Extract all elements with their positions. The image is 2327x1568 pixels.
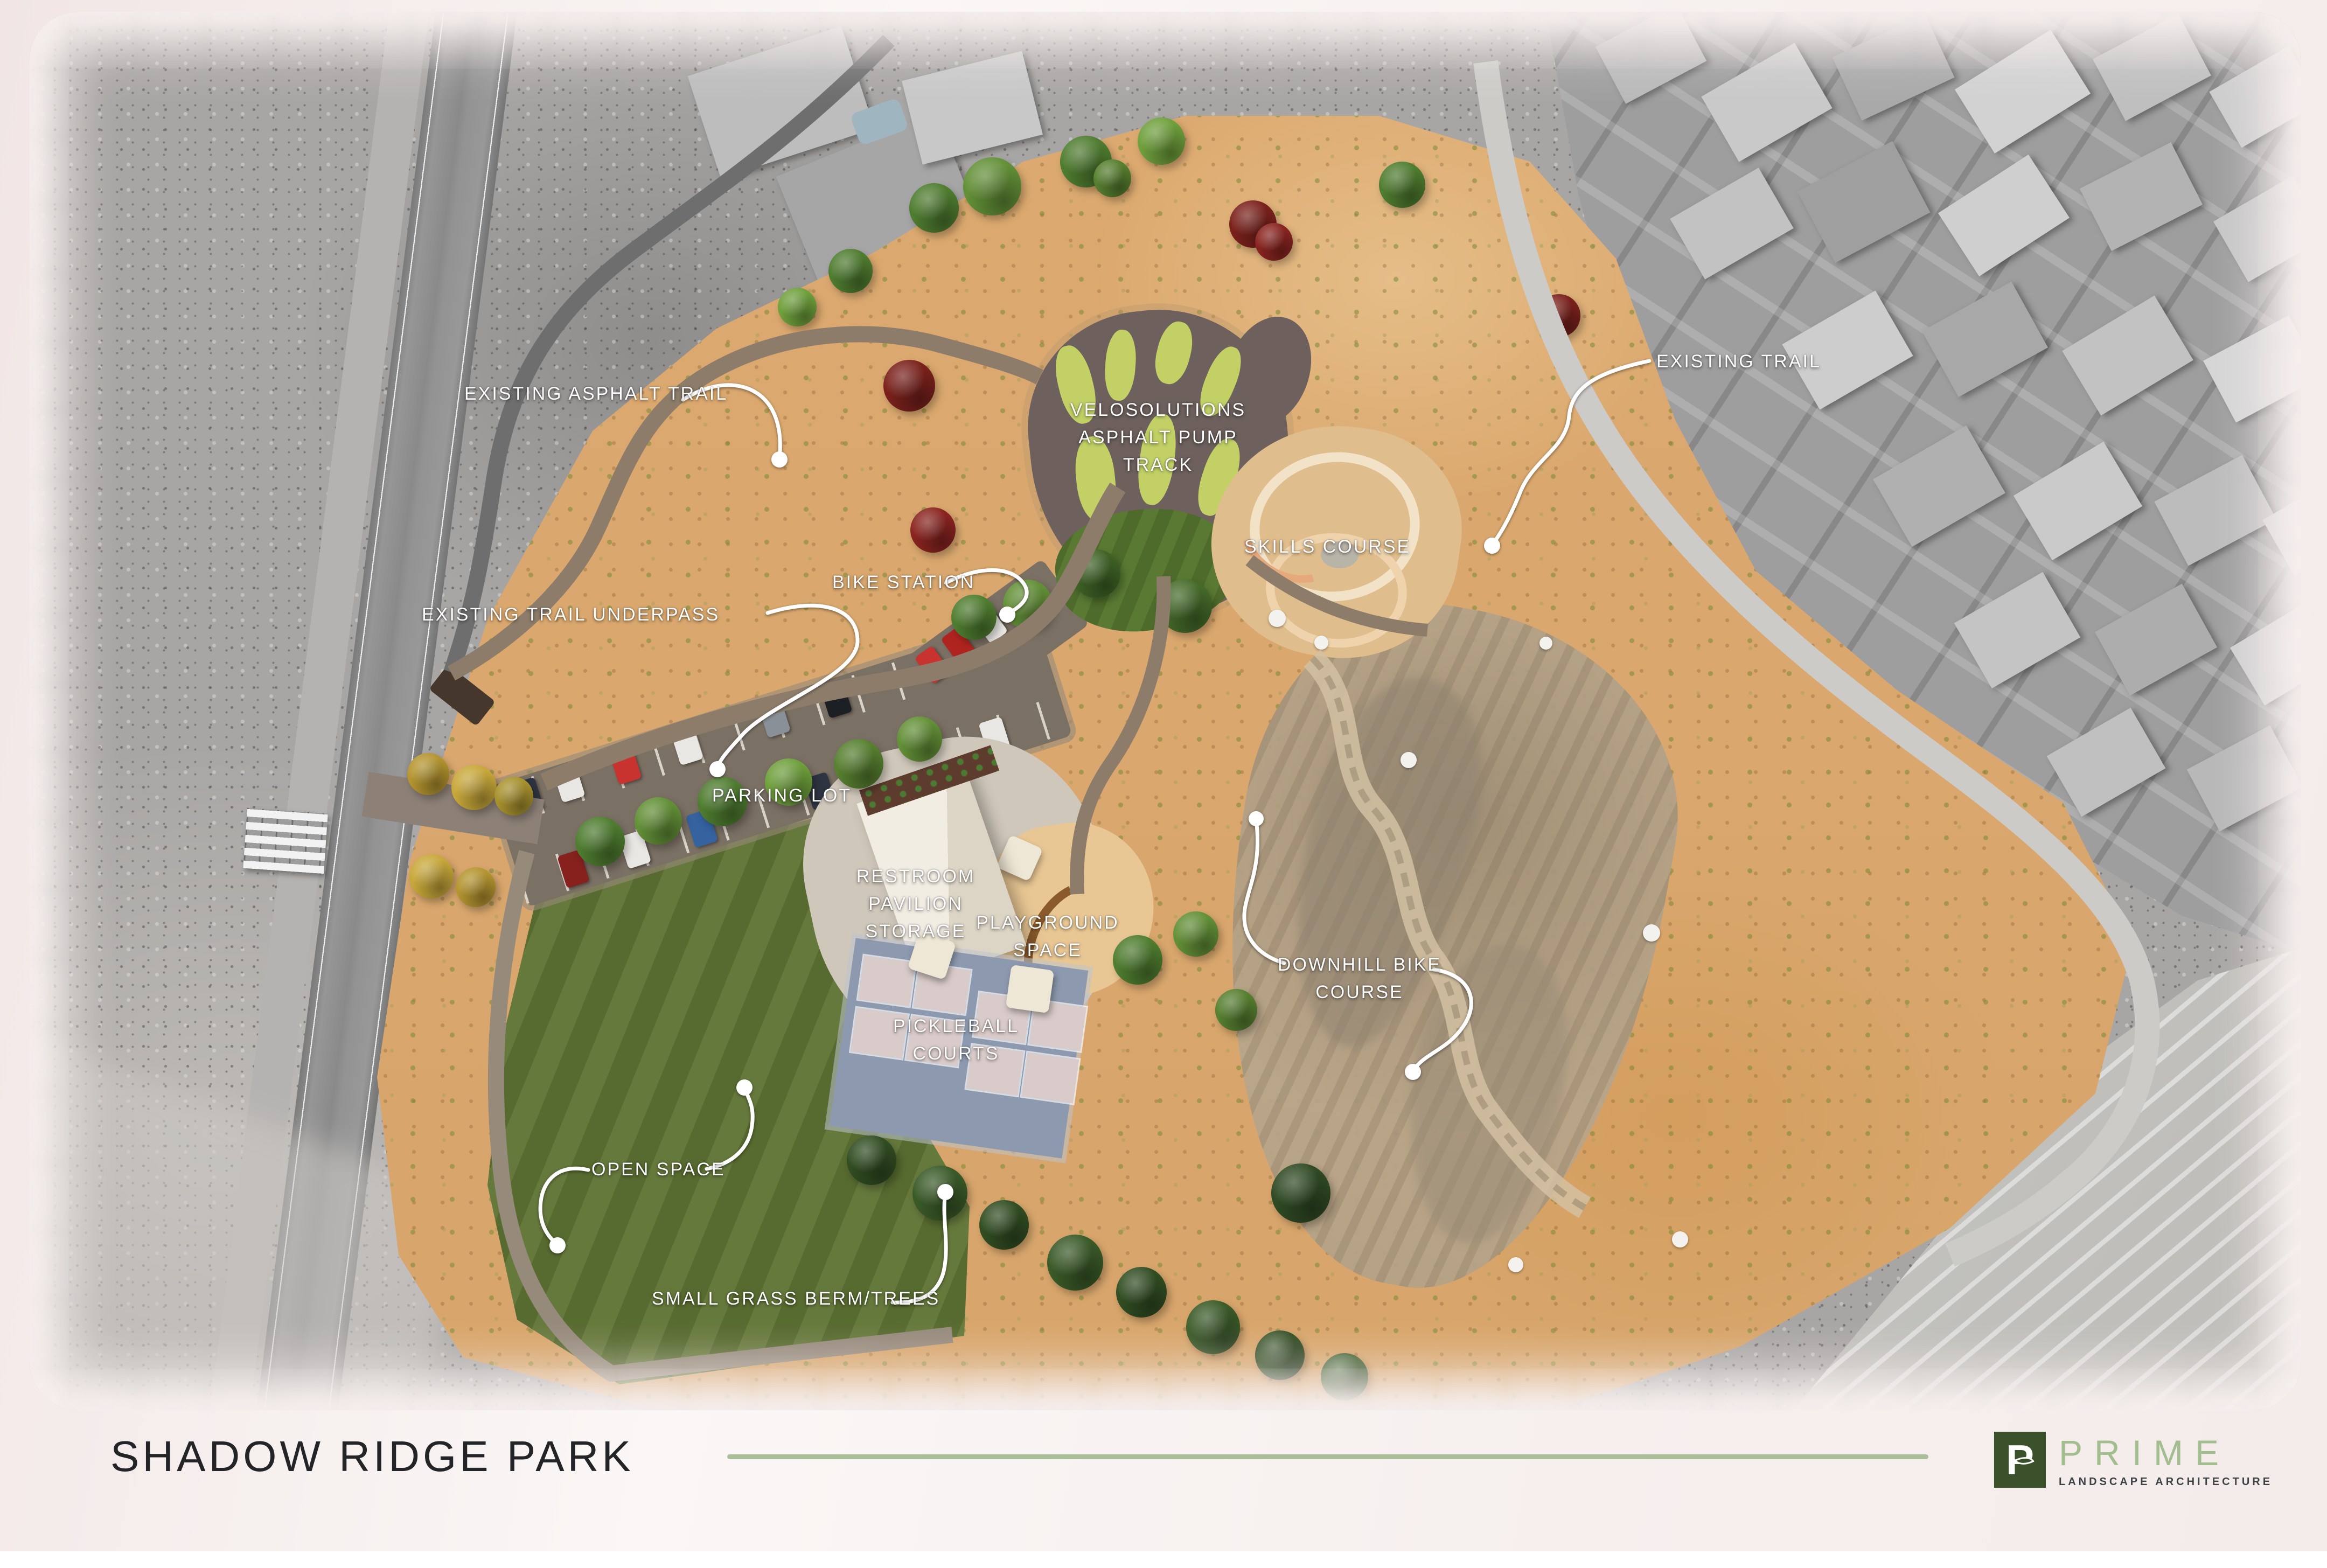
label-skills-course: SKILLS COURSE xyxy=(1244,533,1411,561)
label-existing-trail: EXISTING TRAIL xyxy=(1656,348,1821,375)
label-parking-lot: PARKING LOT xyxy=(712,782,852,810)
leader-dot xyxy=(736,1079,753,1096)
brand-name: PRIME xyxy=(2059,1435,2273,1471)
leader-downhill-left xyxy=(1244,820,1284,963)
leader-existing-trail xyxy=(1492,361,1649,545)
callout-leader-lines xyxy=(0,0,2327,1551)
label-small-grass-berm: SMALL GRASS BERM/TREES xyxy=(652,1285,940,1313)
leader-dot xyxy=(771,451,788,468)
label-downhill-bike-course: DOWNHILL BIKE COURSE xyxy=(1278,951,1441,1006)
brand-tagline: LANDSCAPE ARCHITECTURE xyxy=(2059,1476,2273,1488)
brand-logo: P PRIME LANDSCAPE ARCHITECTURE xyxy=(1994,1432,2273,1488)
label-pickleball-courts: PICKLEBALL COURTS xyxy=(893,1013,1019,1068)
leader-dot xyxy=(999,607,1015,623)
leader-dot xyxy=(549,1237,566,1253)
prime-logo-icon: P xyxy=(1994,1432,2046,1488)
label-restroom-pavilion-storage: RESTROOM PAVILION STORAGE xyxy=(856,863,975,945)
divider-line xyxy=(727,1454,1928,1459)
leader-dot xyxy=(937,1184,953,1200)
aerial-site-plan: EXISTING ASPHALT TRAIL EXISTING TRAIL EX… xyxy=(0,0,2327,1551)
label-existing-asphalt-trail: EXISTING ASPHALT TRAIL xyxy=(464,380,728,408)
leader-dot xyxy=(1249,811,1264,826)
label-bike-station: BIKE STATION xyxy=(832,569,975,596)
label-velosolutions-pump-track: VELOSOLUTIONS ASPHALT PUMP TRACK xyxy=(1070,396,1246,479)
brand-logo-text: PRIME LANDSCAPE ARCHITECTURE xyxy=(2059,1432,2273,1488)
page-title: SHADOW RIDGE PARK xyxy=(110,1432,634,1481)
label-open-space: OPEN SPACE xyxy=(591,1156,726,1183)
label-playground-space: PLAYGROUND SPACE xyxy=(976,909,1119,964)
leader-underpass xyxy=(717,605,858,768)
plan-sheet: EXISTING ASPHALT TRAIL EXISTING TRAIL EX… xyxy=(0,0,2327,1551)
leader-dot xyxy=(1405,1064,1421,1080)
leader-dot xyxy=(1484,538,1500,554)
label-existing-trail-underpass: EXISTING TRAIL UNDERPASS xyxy=(422,601,720,629)
leader-open-space-left xyxy=(540,1168,588,1244)
leader-dot xyxy=(709,761,726,777)
